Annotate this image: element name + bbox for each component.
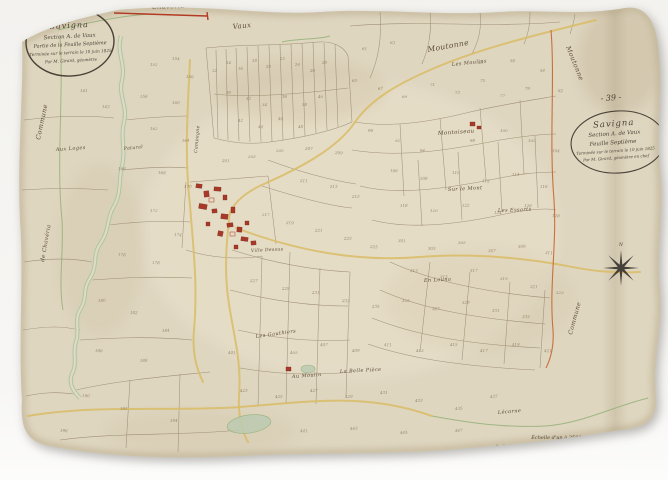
parcel-number: 42: [237, 118, 244, 123]
parcel-number: 92: [395, 138, 401, 143]
parcel-number: 441: [299, 428, 308, 433]
parcel-number: 419: [511, 342, 520, 347]
parcel-number: 433: [414, 398, 423, 403]
parcel-number: 447: [454, 428, 463, 433]
parcel-number: 168: [158, 170, 166, 175]
parcel-number: 423: [239, 388, 248, 393]
parcel-number: 203: [247, 154, 256, 159]
parcel-number: 188: [140, 358, 148, 363]
place-label: Chavéria: [152, 2, 185, 11]
parcel-number: 227: [249, 278, 258, 283]
parcel-number: 16: [238, 66, 244, 71]
parcel-number: 409: [351, 348, 360, 353]
page-stamp: 7: [24, 437, 33, 450]
parcel-number: 190: [82, 393, 90, 398]
parcel-number: 217: [261, 212, 270, 217]
parcel-number: 100: [500, 128, 508, 133]
parcel-number: 141: [80, 88, 88, 93]
parcel-number: 445: [399, 430, 408, 435]
parcel-number: 114: [512, 172, 520, 177]
parcel-number: 221: [314, 228, 323, 233]
parcel-number: 319: [500, 276, 508, 281]
parcel-number: 411: [383, 342, 392, 347]
parcel-number: 174: [174, 232, 182, 237]
parcel-number: 143: [102, 104, 110, 109]
parcel-number: 44: [257, 124, 264, 129]
parcel-number: 79: [525, 86, 531, 91]
parcel-number: 313: [410, 268, 418, 273]
parcel-number: 223: [343, 236, 352, 241]
parcel-number: 54: [540, 68, 546, 73]
parcel-number: 192: [120, 406, 128, 411]
parcel-number: 118: [400, 203, 408, 208]
parcel-number: 26: [309, 68, 316, 73]
parcel-number: 327: [432, 306, 440, 311]
parcel-number: 71: [430, 82, 435, 87]
parcel-number: 170: [184, 184, 192, 189]
parcel-number: 73: [455, 90, 461, 95]
parcel-number: 14: [226, 60, 232, 65]
parcel-number: 34: [262, 102, 268, 107]
parcel-number: 158: [140, 94, 148, 99]
parcel-number: 164: [182, 138, 190, 143]
parcel-number: 180: [98, 298, 106, 303]
parcel-number: 63: [390, 40, 396, 45]
parcel-number: 303: [428, 246, 436, 251]
scale-label: Échelle d'un à 2500 mètres: [530, 433, 601, 441]
parcel-number: 61: [362, 46, 367, 51]
parcel-number: 94: [420, 148, 426, 153]
parcel-number: 40: [317, 94, 324, 99]
parcel-number: 421: [543, 348, 552, 353]
parcel-number: 58: [478, 60, 484, 65]
parcel-number: 325: [402, 298, 410, 303]
parcel-number: 401: [227, 350, 236, 355]
parcel-number: 20: [265, 64, 272, 69]
parcel-number: 166: [118, 166, 126, 171]
parcel-number: 233: [341, 298, 350, 303]
parcel-number: 67: [378, 86, 384, 91]
parcel-number: 124: [494, 210, 502, 215]
scanned-map-page: VauxMoutonneLes MoulinsMontoiseauSur le …: [0, 0, 668, 480]
parcel-number: 69: [402, 94, 408, 99]
parcel-number: 48: [297, 124, 304, 129]
parcel-number: 12: [212, 68, 218, 73]
parcel-number: 108: [420, 176, 428, 181]
parcel-number: 182: [130, 310, 138, 315]
parcel-number: 75: [480, 78, 486, 83]
parcel-number: 104: [552, 148, 560, 153]
parcel-number: 22: [279, 56, 286, 61]
parcel-number: 110: [452, 170, 460, 175]
sheet-number: - 39 -: [600, 93, 622, 103]
parcel-number: 315: [440, 274, 448, 279]
parcel-number: 152: [150, 62, 158, 67]
parcel-number: 184: [162, 328, 170, 333]
parcel-number: 331: [492, 308, 500, 313]
parcel-number: 205: [275, 148, 284, 153]
parcel-number: 301: [398, 238, 406, 243]
parcel-number: 405: [289, 350, 298, 355]
parcel-number: 437: [489, 394, 498, 399]
cadastral-map-canvas: VauxMoutonneLes MoulinsMontoiseauSur le …: [0, 0, 668, 480]
parcel-number: 160: [172, 100, 180, 105]
paper-sheet: VauxMoutonneLes MoulinsMontoiseauSur le …: [19, 2, 667, 458]
parcel-number: 307: [488, 248, 496, 253]
parcel-number: 156: [186, 74, 194, 79]
parcel-number: 229: [281, 286, 290, 291]
parcel-number: 231: [311, 290, 320, 295]
parcel-number: 417: [479, 348, 488, 353]
parcel-number: 235: [371, 304, 380, 309]
parcel-number: 415: [449, 342, 458, 347]
parcel-number: 209: [334, 150, 343, 155]
parcel-number: 225: [369, 244, 378, 249]
parcel-number: 443: [349, 426, 358, 431]
parcel-number: 311: [545, 250, 553, 255]
parcel-number: 126: [524, 203, 532, 208]
parcel-number: 321: [530, 284, 538, 289]
parcel-number: 46: [277, 116, 284, 121]
parcel-number: 65: [352, 78, 358, 83]
parcel-number: 309: [518, 244, 526, 249]
parcel-number: 128: [552, 213, 560, 218]
parcel-number: 407: [319, 342, 328, 347]
parcel-number: 162: [150, 126, 158, 131]
parcel-number: 196: [60, 428, 68, 433]
parcel-number: 18: [252, 58, 258, 63]
parcel-number: 32: [246, 96, 252, 101]
parcel-number: 116: [540, 184, 548, 189]
parcel-number: 106: [390, 168, 398, 173]
parcel-number: 77: [500, 93, 506, 98]
parcel-number: 36: [282, 94, 288, 99]
parcel-number: 207: [304, 146, 313, 151]
parcel-number: 98: [470, 138, 476, 143]
parcel-number: 186: [95, 348, 103, 353]
parcel-number: 323: [556, 290, 564, 295]
parcel-number: 211: [299, 178, 308, 183]
parcel-number: 176: [118, 252, 126, 257]
parcel-number: 154: [172, 56, 180, 61]
parcel-number: 305: [458, 240, 466, 245]
parcel-number: 431: [379, 390, 388, 395]
parcel-number: 28: [321, 60, 328, 65]
parcel-number: 215: [351, 194, 360, 199]
parcel-number: 90: [368, 128, 374, 133]
parcel-number: 194: [170, 418, 178, 423]
parcel-number: 38: [302, 102, 308, 107]
parcel-number: 24: [294, 62, 301, 67]
parcel-number: 425: [274, 394, 283, 399]
parcel-number: 122: [462, 203, 470, 208]
parcel-number: 329: [462, 300, 470, 305]
parcel-number: 413: [415, 348, 424, 353]
parcel-number: 213: [329, 184, 338, 189]
parcel-number: 178: [152, 260, 160, 265]
parcel-number: 30: [226, 90, 232, 95]
parcel-number: 317: [470, 268, 478, 273]
parcel-number: 172: [150, 208, 158, 213]
parcel-number: 112: [482, 178, 490, 183]
parcel-number: 82: [558, 88, 564, 93]
parcel-number: 435: [454, 406, 463, 411]
parcel-number: 429: [344, 394, 353, 399]
page-stamp-number: 7: [24, 437, 32, 450]
parcel-number: 219: [285, 220, 294, 225]
parcel-number: 56: [510, 58, 516, 63]
parcel-number: 333: [522, 314, 530, 319]
parcel-number: 102: [528, 138, 536, 143]
parcel-number: 427: [309, 388, 318, 393]
parcel-number: 201: [221, 158, 230, 163]
parcel-number: 120: [430, 208, 438, 213]
